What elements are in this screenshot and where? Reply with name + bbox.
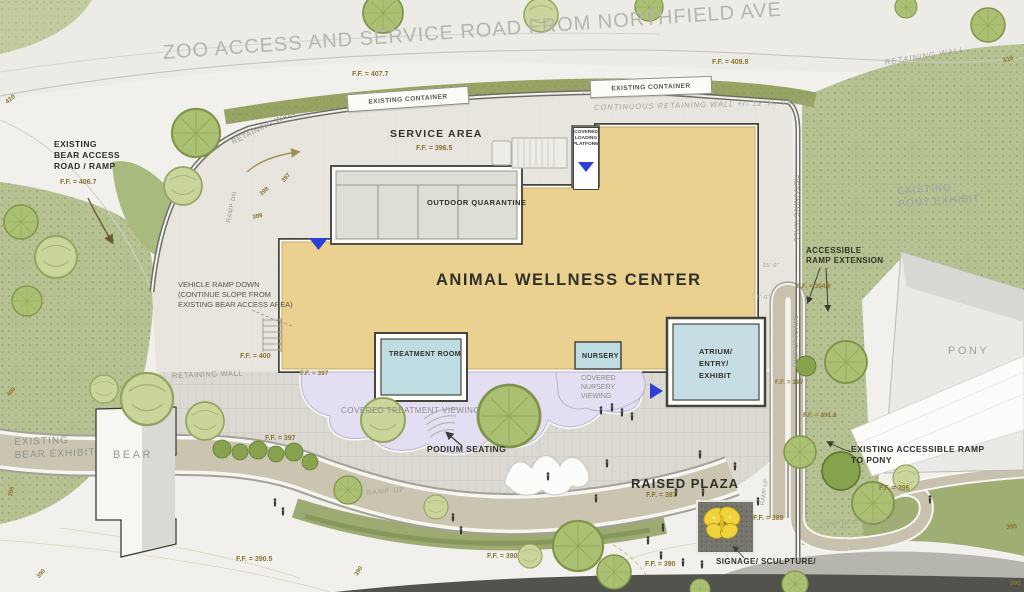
ff-409-8: F.F. = 409.8 [712,58,748,67]
bear-access-ff: F.F. = 406.7 [60,178,96,187]
ff-400: F.F. = 400 [240,352,271,361]
service-area-title: SERVICE AREA [390,128,483,142]
pony-building-label: PONY [948,344,989,358]
entry-arrow-icon [578,162,594,172]
loading-platform-text: COVERED LOADING PLATFORM [573,130,599,148]
vehicle-ramp-note: VEHICLE RAMP DOWN (CONTINUE SLOPE FROM E… [178,280,293,309]
ff-397-west: F.F. = 397 [300,370,328,378]
ramp-up-awc-label: RAMP UP TO AWC [794,315,802,367]
contour-395-se: 395 [1006,523,1017,532]
site-plan-drawing [0,0,1024,592]
dim-7-6: 7'-6" [578,82,585,95]
bear-exhibit-label: EXISTING BEAR EXHIBIT [14,433,96,462]
nursery-label: NURSERY [582,352,619,361]
ff-390-a: F.F. = 390 [487,552,518,561]
retaining-wall-label-e: RETAINING WALL [791,175,800,242]
sculpture-plaza [697,501,754,553]
ff-394-6: F.F. = 394.6 [797,283,831,291]
existing-ramp-pony-label: EXISTING ACCESSIBLE RAMP TO PONY [851,444,985,466]
dim-8-0: 8'-0" [757,295,770,302]
dim-15-0: 15'-0" [763,263,779,270]
ff-389: F.F. = 389 [753,514,784,523]
awc-title: ANIMAL WELLNESS CENTER [436,270,702,291]
ff-396: F.F. = 396 [879,484,910,493]
covered-treatment-viewing-label: COVERED TREATMENT VIEWING [341,406,480,416]
ff-397-plaza-west: F.F. = 397 [265,434,296,443]
covered-loading-platform-label: COVERED LOADING PLATFORM [573,127,599,190]
ff-397-east: F.F. = 397 [775,379,803,387]
bear-access-label: EXISTING BEAR ACCESS ROAD / RAMP [54,139,120,172]
accessible-ramp-ext-label: ACCESSIBLE RAMP EXTENSION [806,246,883,267]
service-area-ff: F.F. = 396.5 [416,144,452,153]
podium-seating-label: PODIUM SEATING [427,444,506,455]
bear-building-label: BEAR [113,448,153,462]
site-plan-canvas: ZOO ACCESS AND SERVICE ROAD FROM NORTHFI… [0,0,1024,592]
atrium-label: ATRIUM/ ENTRY/ EXHIBIT [699,346,733,382]
ff-390-5: F.F. = 390.5 [236,555,272,564]
contour-390-se: 390 [1010,580,1021,588]
ff-390-b: F.F. = 390 [645,560,676,569]
signage-sculpture-label: SIGNAGE/ SCULPTURE/ [716,557,816,567]
covered-nursery-viewing-label: COVERED NURSERY VIEWING [581,374,616,401]
service-truck [492,138,567,168]
ff-407-7: F.F. = 407.7 [352,70,388,79]
ff-391-6: F.F. = 391.6 [803,412,837,420]
treatment-room-label: TREATMENT ROOM [389,350,461,359]
treatment-room-box [375,333,467,401]
raised-plaza-ff: F.F. = 397 [646,491,677,500]
outdoor-quarantine-label: OUTDOOR QUARANTINE [427,198,526,208]
